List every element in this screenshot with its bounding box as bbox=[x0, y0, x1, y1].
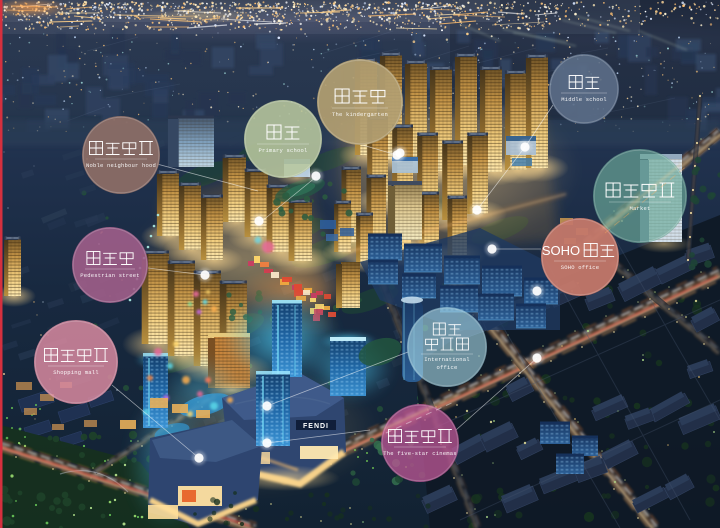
svg-text:Pedestrian street: Pedestrian street bbox=[80, 272, 140, 279]
svg-text:FENDI: FENDI bbox=[303, 423, 329, 430]
svg-text:Primary school: Primary school bbox=[258, 147, 307, 154]
svg-text:Shopping mall: Shopping mall bbox=[53, 369, 99, 376]
svg-text:SOHO: SOHO bbox=[542, 243, 580, 258]
svg-text:The five-star cinemas: The five-star cinemas bbox=[383, 450, 457, 457]
svg-text:The kindergarten: The kindergarten bbox=[332, 111, 388, 118]
svg-text:Middle school: Middle school bbox=[561, 96, 607, 103]
svg-text:Market: Market bbox=[629, 205, 650, 212]
svg-text:office: office bbox=[436, 364, 457, 371]
svg-text:International: International bbox=[424, 356, 470, 363]
svg-text:SOHO office: SOHO office bbox=[561, 264, 600, 271]
svg-text:Noble neighbour hood: Noble neighbour hood bbox=[86, 162, 156, 169]
